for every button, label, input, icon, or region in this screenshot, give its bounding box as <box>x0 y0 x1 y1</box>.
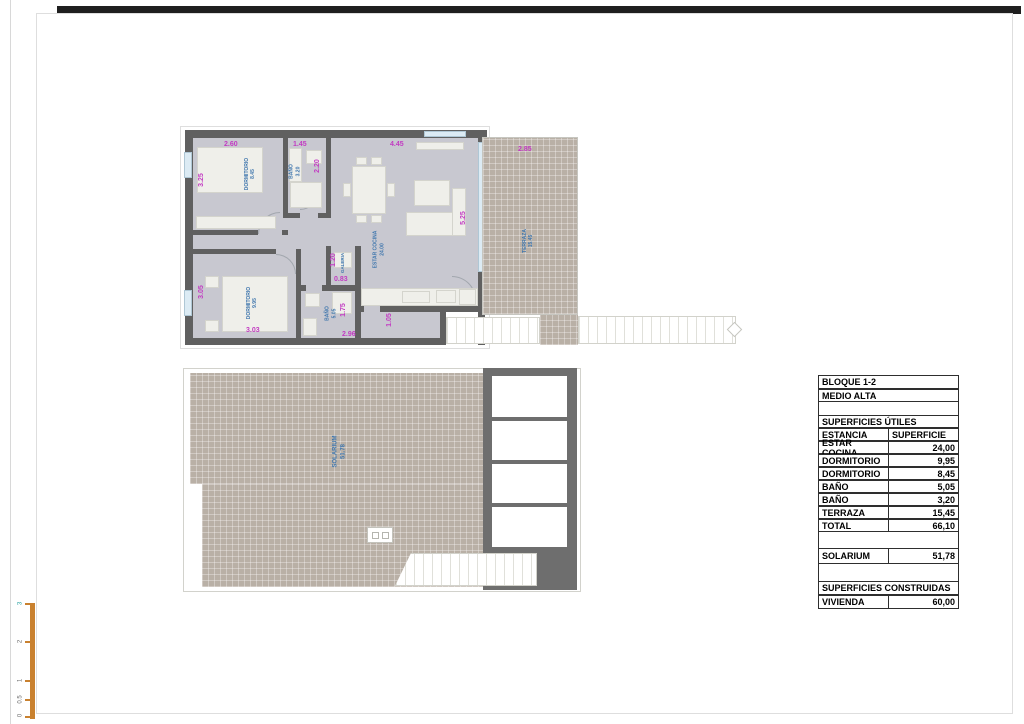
window-estar-north <box>424 131 466 137</box>
dimension-bano2-height: 1.75 <box>338 298 348 322</box>
table-row: TERRAZA 15,45 <box>818 506 959 519</box>
room-label-terraza: TERRAZA 15.45 <box>522 215 534 267</box>
room-area: 3.20 <box>295 167 302 177</box>
scale-tick <box>25 603 35 605</box>
vent-cell <box>382 532 389 539</box>
room-label-bano-1: BAÑO 3.20 <box>290 152 301 192</box>
furniture-sink-bano2 <box>303 318 317 336</box>
scale-tick <box>25 716 35 718</box>
table-row: ESTAR COCINA 24,00 <box>818 441 959 454</box>
section-title: SUPERFICIES CONSTRUIDAS <box>822 583 951 593</box>
room-area: 15.45 <box>528 235 535 248</box>
structure-opening <box>492 376 567 417</box>
structure-opening <box>492 507 567 547</box>
dimension-estar-width: 4.45 <box>390 141 404 148</box>
furniture-kitchen-sink <box>402 291 430 303</box>
furniture-fridge <box>459 289 476 305</box>
door-opening-bano2 <box>306 285 322 291</box>
room-label-estar-cocina: ESTAR COCINA 24.00 <box>373 218 386 282</box>
room-name: SOLARIUM <box>332 436 340 468</box>
room-label-dormitorio-1: DORMITORIO 8.45 <box>244 146 256 202</box>
table-gap-row <box>818 532 959 548</box>
cell-superficie: 51,78 <box>889 551 958 561</box>
cell-superficie: 8,45 <box>889 469 958 479</box>
furniture-stove <box>436 290 456 303</box>
scale-bar <box>30 604 35 719</box>
cell-estancia: DORMITORIO <box>819 455 889 466</box>
table-gap-row <box>818 564 959 581</box>
door-opening-entry <box>364 306 380 312</box>
cell-superficie: 5,05 <box>889 482 958 492</box>
furniture-console <box>416 142 464 150</box>
bloque-title: BLOQUE 1-2 <box>822 377 876 387</box>
door-opening-bano1 <box>300 213 318 218</box>
furniture-coffee-table <box>414 180 450 206</box>
scale-label: 3 <box>17 596 24 612</box>
dimension-estar-height: 5.25 <box>458 206 468 230</box>
cell-estancia: DORMITORIO <box>819 468 889 479</box>
scale-tick <box>25 680 35 682</box>
furniture-chair <box>371 157 382 165</box>
drawing-sheet: DORMITORIO 8.45 BAÑO 3.20 ESTAR COCINA 2… <box>0 0 1024 724</box>
room-area: 9.95 <box>252 298 259 308</box>
scale-tick <box>25 641 35 643</box>
furniture-toilet-bano2 <box>305 293 320 307</box>
wall-bottom <box>185 338 446 345</box>
furniture-chair <box>356 215 367 223</box>
vent-cell <box>372 532 379 539</box>
table-row-medio: MEDIO ALTA <box>818 389 959 402</box>
window-dorm2 <box>184 290 192 316</box>
furniture-chair <box>356 157 367 165</box>
scale-label: 0.5 <box>17 692 24 708</box>
dimension-terraza-width: 2.85 <box>518 146 532 153</box>
furniture-chair <box>343 183 351 197</box>
cell-estancia: TOTAL <box>819 520 889 531</box>
medio-title: MEDIO ALTA <box>822 391 876 401</box>
roof-vent-icon <box>367 527 393 543</box>
wall-bano1-estar <box>326 138 331 218</box>
dimension-entry-width: 1.05 <box>384 308 394 332</box>
dimension-dorm1-width: 2.60 <box>224 141 238 148</box>
furniture-chair <box>387 183 395 197</box>
window-dorm1 <box>184 152 192 178</box>
scale-label: 1 <box>17 673 24 689</box>
cell-superficie: 24,00 <box>889 443 958 453</box>
cell-superficie: 3,20 <box>889 495 958 505</box>
cell-superficie: 66,10 <box>889 521 958 531</box>
col-header-superficie: SUPERFICIE <box>889 430 958 440</box>
dimension-bano1-width: 1.45 <box>293 141 307 148</box>
cell-superficie: 15,45 <box>889 508 958 518</box>
table-gap-row <box>818 402 959 415</box>
dimension-bano2-width: 2.96 <box>342 331 356 338</box>
table-row-superficies-construidas: SUPERFICIES CONSTRUIDAS <box>818 581 959 595</box>
room-area: 5.05 <box>331 309 338 319</box>
terraza-surface-lower <box>540 315 578 345</box>
table-row: BAÑO 3,20 <box>818 493 959 506</box>
stair-run-solarium <box>395 553 537 586</box>
table-row: DORMITORIO 8,45 <box>818 467 959 480</box>
structure-opening <box>492 464 567 503</box>
room-label-solarium: SOLARIUM 51.78 <box>333 422 348 482</box>
furniture-nightstand <box>205 276 219 288</box>
wall-dorm1-bano1 <box>283 138 288 218</box>
room-label-galeria: GALERIA <box>339 246 347 280</box>
room-label-dormitorio-2: DORMITORIO 9.95 <box>246 275 258 331</box>
section-title: SUPERFICIES ÚTILES <box>822 417 917 427</box>
dimension-galeria-width: 0.83 <box>334 276 348 283</box>
wall-dorm2-east <box>296 254 301 338</box>
room-name: GALERIA <box>340 253 346 273</box>
scale-label: 0 <box>17 708 24 724</box>
cell-superficie: 60,00 <box>889 597 958 607</box>
scale-tick <box>25 699 35 701</box>
room-label-bano-2: BAÑO 5.05 <box>326 296 337 332</box>
furniture-wardrobe-dorm1 <box>196 216 276 229</box>
dimension-dorm1-height: 3.25 <box>196 168 206 192</box>
table-row: BAÑO 5,05 <box>818 480 959 493</box>
table-row-solarium: SOLARIUM 51,78 <box>818 548 959 564</box>
furniture-nightstand <box>205 320 219 332</box>
furniture-dining-table <box>352 166 386 214</box>
cell-estancia: BAÑO <box>819 494 889 505</box>
sheet-left-edge <box>10 0 11 724</box>
structure-opening <box>492 421 567 460</box>
stair-run-right <box>578 316 736 344</box>
room-area: 51.78 <box>340 444 348 459</box>
stair-run-left <box>446 317 540 344</box>
cell-estancia: BAÑO <box>819 481 889 492</box>
table-row-superficies-utiles: SUPERFICIES ÚTILES <box>818 415 959 428</box>
table-row-vivienda: VIVIENDA 60,00 <box>818 595 959 609</box>
scale-label: 2 <box>17 634 24 650</box>
cell-estancia: VIVIENDA <box>819 596 889 608</box>
cell-estancia: ESTAR COCINA <box>819 442 889 453</box>
room-area: 24.00 <box>379 243 386 256</box>
table-row-total: TOTAL 66,10 <box>818 519 959 532</box>
cell-superficie: 9,95 <box>889 456 958 466</box>
table-row: DORMITORIO 9,95 <box>818 454 959 467</box>
dimension-dorm2-height: 3.05 <box>196 280 206 304</box>
dimension-bano1-height: 2.20 <box>312 154 322 178</box>
room-area: 8.45 <box>250 169 257 179</box>
table-row-bloque: BLOQUE 1-2 <box>818 375 959 389</box>
cell-estancia: SOLARIUM <box>819 549 889 563</box>
dimension-galeria-height: 1.20 <box>328 248 338 272</box>
cell-estancia: TERRAZA <box>819 507 889 518</box>
dimension-dorm2-width: 3.03 <box>246 327 260 334</box>
